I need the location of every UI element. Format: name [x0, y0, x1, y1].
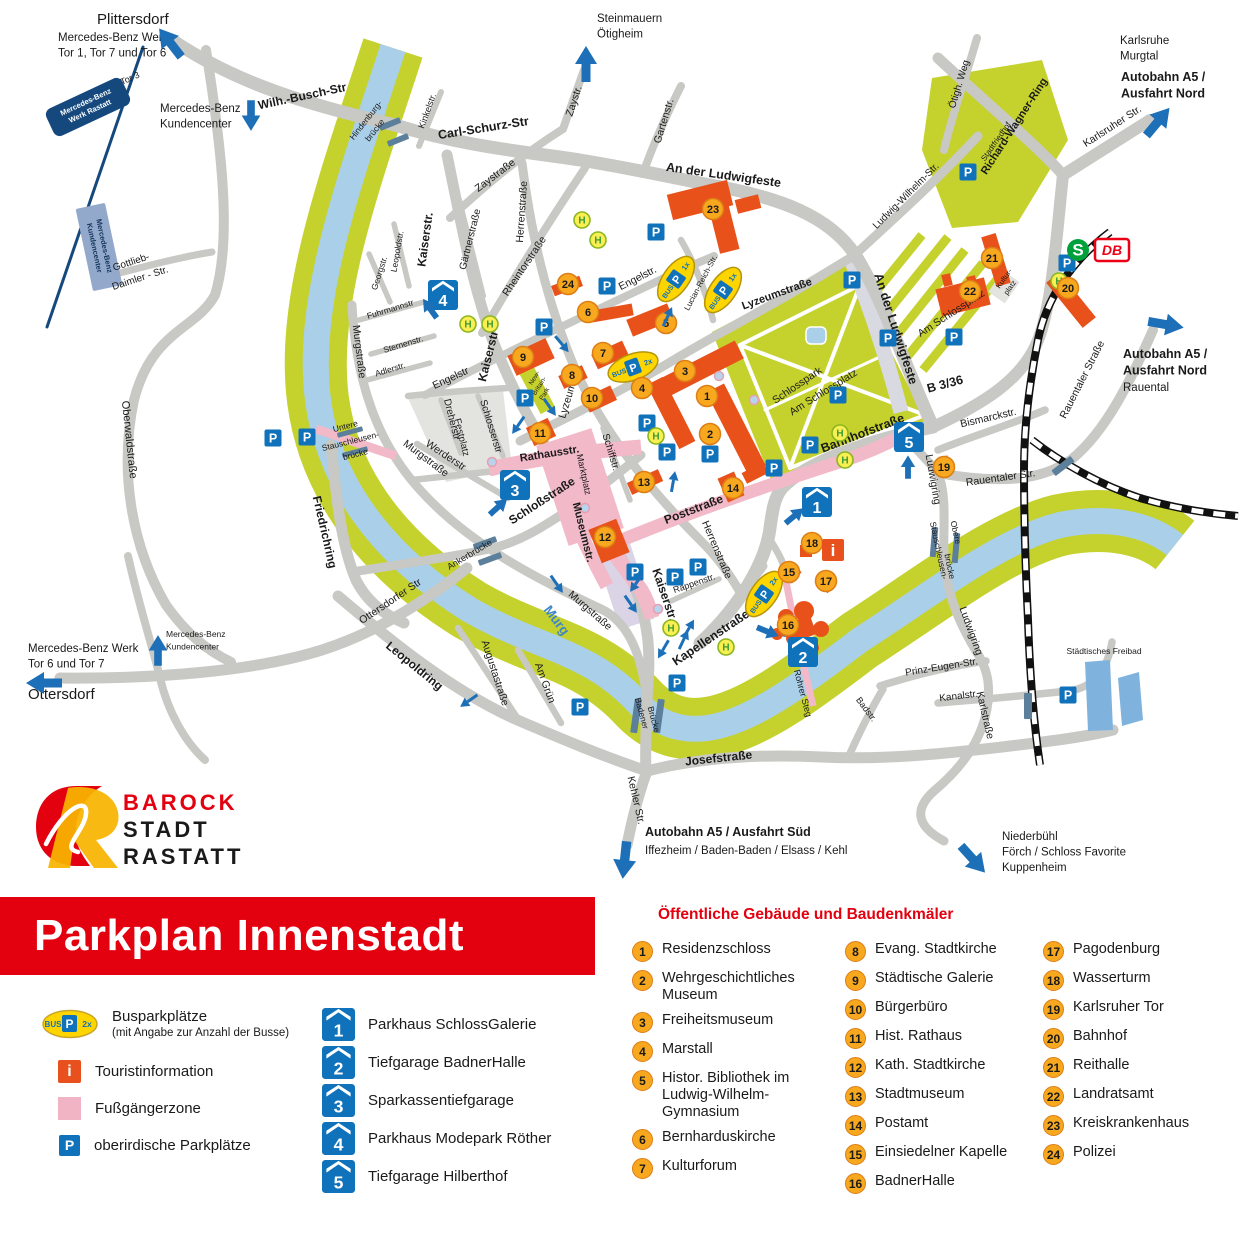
poi-marker: 22: [960, 281, 981, 302]
poi-legend-item: 19 Karlsruher Tor: [1043, 999, 1218, 1020]
parking-icon-p: P: [806, 439, 814, 453]
poi-legend-item: 14 Postamt: [845, 1115, 1030, 1136]
badnerhalle-building: [794, 601, 814, 621]
parking-icon: P: [702, 446, 719, 463]
poi-marker: 24: [558, 274, 579, 295]
poi-label: Stadtmuseum: [875, 1086, 964, 1107]
parking-icon: P: [766, 460, 783, 477]
parking-icon: P: [659, 444, 676, 461]
bus-stop-h: H: [836, 429, 843, 440]
parking-icon: P: [536, 319, 553, 336]
poi-label: Histor. Bibliothek im Ludwig-Wilhelm-Gym…: [662, 1070, 828, 1121]
poi-number-badge: 1: [632, 941, 653, 962]
destination-label: Karlsruhe: [1120, 35, 1169, 47]
poi-marker: 12: [595, 527, 616, 548]
brand-line: RASTATT: [123, 843, 243, 870]
bus-stop-h: H: [652, 432, 659, 443]
street-label: Obere: [949, 520, 964, 545]
parkhaus-icon: 3: [322, 1084, 355, 1117]
destination-label: Autobahn A5 /: [1121, 70, 1206, 84]
poi-label: Wehrgeschichtliches Museum: [662, 970, 828, 1004]
poi-legend-column: 8 Evang. Stadtkirche9 Städtische Galerie…: [845, 941, 1030, 1202]
brand-line: STADT: [123, 816, 243, 843]
street-label: Leopoldring: [383, 639, 446, 694]
city-map: Mercedes-BenzWerk RastattMercedes-BenzKu…: [0, 0, 1240, 897]
fountain: [488, 458, 497, 467]
poi-marker: 21: [982, 248, 1003, 269]
legend-parkplaetze: P oberirdische Parkplätze: [42, 1135, 342, 1156]
poi-number-badge: 18: [1043, 970, 1064, 991]
road: [128, 50, 231, 662]
garage-legend-item: 2 Tiefgarage BadnerHalle: [322, 1046, 551, 1079]
poi-legend-item: 4 Marstall: [632, 1041, 828, 1062]
parking-icon: P: [669, 675, 686, 692]
oneway-arrow-tail: [663, 640, 669, 650]
oneway-arrow-head: [685, 617, 698, 630]
poi-marker-number: 14: [727, 483, 740, 495]
bus-stop-icon: H: [832, 425, 848, 441]
parking-icon-p: P: [303, 431, 311, 445]
parking-icon-p: P: [950, 331, 958, 345]
poi-label: Marstall: [662, 1041, 713, 1062]
parkplan-poster: Mercedes-BenzWerk RastattMercedes-BenzKu…: [0, 0, 1240, 1240]
poi-marker: 18: [802, 533, 823, 554]
poi-legend-item: 24 Polizei: [1043, 1144, 1218, 1165]
destination-label: Autobahn A5 / Ausfahrt Süd: [645, 825, 811, 839]
street-label: Prinz-Eugen-Str.: [905, 656, 979, 678]
destination-label: Mercedes-Benz Werk: [28, 643, 139, 655]
poi-marker-number: 2: [707, 429, 713, 441]
direction-arrow: [611, 840, 638, 880]
parking-icon: P: [265, 430, 282, 447]
bus-stop-h: H: [594, 236, 601, 247]
schlosspark-pond: [806, 327, 826, 344]
poi-label: Bernharduskirche: [662, 1129, 776, 1150]
poi-marker-number: 12: [599, 532, 611, 544]
poi-label: Reithalle: [1073, 1057, 1129, 1078]
poi-number-badge: 9: [845, 970, 866, 991]
parking-icon-p: P: [770, 462, 778, 476]
poi-number-badge: 20: [1043, 1028, 1064, 1049]
parkhaus-number: 1: [813, 500, 822, 517]
svg-text:4: 4: [334, 1135, 344, 1155]
poi-legend-item: 11 Hist. Rathaus: [845, 1028, 1030, 1049]
poi-number-badge: 16: [845, 1173, 866, 1194]
bus-stop-icon: H: [482, 316, 498, 332]
sbahn-s: S: [1072, 241, 1083, 260]
legend-label: Fußgängerzone: [95, 1100, 201, 1117]
destination-label: Tor 6 und Tor 7: [28, 659, 105, 671]
destination-label: Kundencenter: [166, 642, 219, 652]
bridge: [1024, 693, 1032, 719]
svg-text:2x: 2x: [82, 1019, 92, 1029]
poi-label: Kulturforum: [662, 1158, 737, 1179]
poi-number-badge: 7: [632, 1158, 653, 1179]
poi-legend-item: 7 Kulturforum: [632, 1158, 828, 1179]
title-banner: Parkplan Innenstadt: [0, 897, 595, 975]
destination-label: Kuppenheim: [1002, 862, 1067, 874]
parking-icon-p: P: [631, 566, 639, 580]
badnerhalle-building: [813, 621, 829, 637]
poi-legend-item: 5 Histor. Bibliothek im Ludwig-Wilhelm-G…: [632, 1070, 828, 1121]
parkhaus-number: 4: [439, 293, 448, 310]
poi-label: Einsiedelner Kapelle: [875, 1144, 1007, 1165]
poi-number-badge: 13: [845, 1086, 866, 1107]
poi-label: Karlsruher Tor: [1073, 999, 1164, 1020]
legend-label: Touristinformation: [95, 1063, 213, 1080]
rastatt-logo-icon: [30, 782, 125, 870]
poi-marker: 10: [582, 388, 603, 409]
poi-legend-item: 16 BadnerHalle: [845, 1173, 1030, 1194]
destination-label: Ausfahrt Nord: [1123, 364, 1207, 378]
poi-legend-item: 21 Reithalle: [1043, 1057, 1218, 1078]
parking-icon-p: P: [603, 280, 611, 294]
garage-legend-item: 3 Sparkassentiefgarage: [322, 1084, 551, 1117]
garage-legend-label: Tiefgarage Hilberthof: [368, 1168, 508, 1185]
poi-number-badge: 24: [1043, 1144, 1064, 1165]
street-label: Kaiserstr.: [414, 211, 435, 267]
poi-number-badge: 19: [1043, 999, 1064, 1020]
poi-marker: 6: [578, 302, 599, 323]
bus-stop-h: H: [667, 624, 674, 635]
garage-direction-arrow: [901, 455, 915, 478]
garage-legend-label: Parkhaus Modepark Röther: [368, 1130, 551, 1147]
poi-marker-number: 21: [986, 253, 998, 265]
garage-legend-label: Tiefgarage BadnerHalle: [368, 1054, 526, 1071]
poi-label: Landratsamt: [1073, 1086, 1154, 1107]
poi-number-badge: 5: [632, 1070, 653, 1091]
freibad-building: [1118, 672, 1143, 726]
parking-icon: P: [960, 164, 977, 181]
destination-label: Ötigheim: [597, 29, 643, 41]
poi-marker-number: 18: [806, 538, 818, 550]
parkhaus-icon: 5: [322, 1160, 355, 1193]
sbahn-icon: S: [1067, 239, 1089, 261]
street-label: Gartenstr.: [652, 97, 677, 145]
parking-icon-p: P: [884, 332, 892, 346]
poi-label: Postamt: [875, 1115, 928, 1136]
poi-label: Bürgerbüro: [875, 999, 948, 1020]
destination-label: Kundencenter: [160, 119, 232, 131]
poi-label: BadnerHalle: [875, 1173, 955, 1194]
page-title: Parkplan Innenstadt: [0, 897, 595, 975]
poi-legend-column: 1 Residenzschloss2 Wehrgeschichtliches M…: [632, 941, 828, 1187]
poi-number-badge: 21: [1043, 1057, 1064, 1078]
poi-marker-number: 3: [682, 366, 688, 378]
road: [128, 556, 205, 760]
bus-stop-icon: H: [574, 212, 590, 228]
street-label: Städtisches Freibad: [1066, 646, 1141, 656]
poi-number-badge: 8: [845, 941, 866, 962]
destination-label: Steinmauern: [597, 13, 662, 25]
parking-icon: P: [802, 437, 819, 454]
parking-icon: P: [667, 569, 684, 586]
poi-marker: 19: [934, 457, 955, 478]
mercedes-site-box: Mercedes-BenzKundencenter: [76, 203, 123, 291]
poi-marker: 11: [530, 423, 551, 444]
parking-icon: P: [648, 224, 665, 241]
poi-legend-item: 1 Residenzschloss: [632, 941, 828, 962]
destination-label: Autobahn A5 /: [1123, 347, 1208, 361]
direction-arrow: [953, 838, 993, 879]
brand-line: BAROCK: [123, 789, 243, 816]
poi-legend-item: 22 Landratsamt: [1043, 1086, 1218, 1107]
bus-stop-icon: H: [837, 452, 853, 468]
parkhaus-icon: 2: [788, 637, 818, 667]
oneway-arrow-tail: [671, 480, 673, 492]
poi-marker: 2: [700, 424, 721, 445]
garage-legend: 1 Parkhaus SchlossGalerie 2 Tiefgarage B…: [322, 1008, 551, 1198]
street-label: Zaystraße: [473, 156, 518, 194]
poi-marker: 16: [778, 615, 799, 636]
poi-label: Evang. Stadtkirche: [875, 941, 997, 962]
road: [921, 702, 988, 841]
parkhaus-icon: 3: [500, 470, 530, 500]
parking-icon: P: [690, 559, 707, 576]
poi-marker: 17: [816, 571, 837, 592]
poi-number-badge: 2: [632, 970, 653, 991]
poi-marker: 23: [703, 199, 724, 220]
db-text: DB: [1102, 242, 1122, 258]
mercedes-site-box: Mercedes-BenzWerk Rastatt: [44, 76, 133, 139]
poi-number-badge: 11: [845, 1028, 866, 1049]
bus-stop-icon: H: [590, 232, 606, 248]
parking-icon: P: [517, 390, 534, 407]
street-label: Rauentaler Straße: [1058, 339, 1108, 421]
parking-icon-p: P: [671, 571, 679, 585]
poi-marker: 8: [562, 365, 583, 386]
parking-icon: P: [830, 387, 847, 404]
street-label: B 3/36: [925, 373, 964, 396]
legend-sublabel: (mit Angabe zur Anzahl der Busse): [112, 1027, 289, 1039]
parking-icon-p: P: [694, 561, 702, 575]
legend-label: oberirdische Parkplätze: [94, 1137, 251, 1154]
poi-number-badge: 3: [632, 1012, 653, 1033]
parkhaus-icon: 2: [322, 1046, 355, 1079]
poi-marker-number: 20: [1062, 283, 1074, 295]
garage-legend-item: 5 Tiefgarage Hilberthof: [322, 1160, 551, 1193]
poi-marker: 7: [593, 343, 614, 364]
poi-label: Bahnhof: [1073, 1028, 1127, 1049]
destination-label: Mercedes-Benz: [166, 629, 226, 639]
poi-marker-number: 19: [938, 462, 950, 474]
bus-stop-h: H: [578, 216, 585, 227]
poi-legend-item: 6 Bernharduskirche: [632, 1129, 828, 1150]
parking-icon: P: [1060, 687, 1077, 704]
poi-number-badge: 14: [845, 1115, 866, 1136]
poi-marker-number: 7: [600, 348, 606, 360]
oneway-arrow-tail: [517, 417, 524, 427]
oneway-arrow-head: [654, 648, 667, 661]
parking-icon-p: P: [269, 432, 277, 446]
poi-legend-item: 9 Städtische Galerie: [845, 970, 1030, 991]
poi-marker: 20: [1058, 278, 1079, 299]
poi-number-badge: 6: [632, 1129, 653, 1150]
brand-text: BAROCK STADT RASTATT: [123, 789, 243, 870]
parking-icon-p: P: [964, 166, 972, 180]
poi-marker-number: 15: [783, 567, 795, 579]
bus-stop-icon: H: [663, 620, 679, 636]
parking-icon: P: [299, 429, 316, 446]
destination-label: Tor 1, Tor 7 und Tor 6: [58, 48, 166, 60]
parkhaus-icon: 1: [322, 1008, 355, 1041]
parking-icon-p: P: [652, 226, 660, 240]
poi-marker-number: 17: [820, 576, 832, 588]
parkhaus-number: 2: [799, 650, 808, 667]
poi-legend-item: 2 Wehrgeschichtliches Museum: [632, 970, 828, 1004]
poi-legend-item: 10 Bürgerbüro: [845, 999, 1030, 1020]
poi-legend-item: 15 Einsiedelner Kapelle: [845, 1144, 1030, 1165]
garage-legend-label: Sparkassentiefgarage: [368, 1092, 514, 1109]
poi-legend-column: 17 Pagodenburg18 Wasserturm19 Karlsruher…: [1043, 941, 1218, 1173]
poi-marker-number: 22: [964, 286, 976, 298]
poi-marker: 3: [675, 361, 696, 382]
parking-icon-p: P: [576, 701, 584, 715]
parking-icon: P: [572, 699, 589, 716]
poi-legend-item: 3 Freiheitsmuseum: [632, 1012, 828, 1033]
parkhaus-icon: 5: [894, 422, 924, 452]
destination-label: Ausfahrt Nord: [1121, 87, 1205, 101]
parking-icon: P: [946, 329, 963, 346]
street-label: Sternenstr.: [382, 333, 424, 355]
parking-icon-p: P: [643, 417, 651, 431]
poi-marker: 14: [723, 478, 744, 499]
poi-legend-item: 12 Kath. Stadtkirche: [845, 1057, 1030, 1078]
poi-marker: 1: [697, 386, 718, 407]
legend-label: Busparkplätze: [112, 1008, 289, 1025]
parking-icon-p: P: [540, 321, 548, 335]
legend-fussgaengerzone: Fußgängerzone: [42, 1097, 342, 1120]
parking-icon-p: P: [848, 274, 856, 288]
destination-label: Förch / Schloss Favorite: [1002, 847, 1126, 859]
parking-icon-p: P: [1064, 689, 1072, 703]
poi-legend-item: 18 Wasserturm: [1043, 970, 1218, 991]
poi-marker-number: 24: [562, 279, 575, 291]
poi-marker-number: 1: [704, 391, 710, 403]
destination-label: Mercedes-Benz: [160, 103, 241, 115]
poi-marker-number: 10: [586, 393, 598, 405]
bus-stop-h: H: [841, 456, 848, 467]
destination-label: Mercedes-Benz Werk: [58, 32, 169, 44]
street-label: Carl-Schurz-Str: [437, 114, 530, 142]
poi-marker: 9: [513, 347, 534, 368]
svg-text:BUS: BUS: [45, 1020, 63, 1029]
bus-stop-h: H: [722, 643, 729, 654]
poi-legend-item: 23 Kreiskrankenhaus: [1043, 1115, 1218, 1136]
svg-text:2: 2: [334, 1059, 344, 1079]
garage-legend-item: 1 Parkhaus SchlossGalerie: [322, 1008, 551, 1041]
destination-label: Plittersdorf: [97, 11, 170, 28]
parking-icon: P: [880, 330, 897, 347]
tourist-info-icon: i: [58, 1060, 81, 1083]
bus-stop-icon: H: [648, 428, 664, 444]
poi-marker-number: 4: [639, 383, 646, 395]
poi-number-badge: 22: [1043, 1086, 1064, 1107]
parkhaus-number: 5: [905, 435, 914, 452]
poi-marker-number: 6: [585, 307, 591, 319]
bus-parking-icon: BUS P 2x: [42, 1009, 98, 1039]
parkhaus-icon: 1: [802, 487, 832, 517]
poi-marker-number: 9: [520, 352, 526, 364]
poi-label: Kreiskrankenhaus: [1073, 1115, 1189, 1136]
fountain: [750, 396, 759, 405]
parking-icon-p: P: [673, 677, 681, 691]
parking-icon-p: P: [706, 448, 714, 462]
poi-number-badge: 4: [632, 1041, 653, 1062]
poi-label: Städtische Galerie: [875, 970, 993, 991]
oneway-arrow-head: [669, 470, 680, 481]
destination-label: Rauental: [1123, 382, 1169, 394]
parking-icon-p: P: [834, 389, 842, 403]
fountain: [654, 605, 663, 614]
bus-stop-icon: H: [460, 316, 476, 332]
svg-text:1: 1: [334, 1021, 344, 1041]
svg-text:3: 3: [334, 1097, 344, 1117]
poi-marker-number: 8: [569, 370, 575, 382]
poi-number-badge: 10: [845, 999, 866, 1020]
garage-legend-item: 4 Parkhaus Modepark Röther: [322, 1122, 551, 1155]
poi-marker-number: 23: [707, 204, 719, 216]
poi-number-badge: 12: [845, 1057, 866, 1078]
poi-marker: 13: [634, 472, 655, 493]
destination-label: Murgtal: [1120, 51, 1158, 63]
poi-marker-number: 11: [534, 428, 546, 440]
parking-icon: P: [844, 272, 861, 289]
parkhaus-icon: 4: [322, 1122, 355, 1155]
bus-stop-h: H: [486, 320, 493, 331]
poi-marker: 4: [632, 378, 653, 399]
db-icon: DB: [1095, 239, 1129, 261]
parking-icon-p: P: [521, 392, 529, 406]
legend-busparkplaetze: BUS P 2x Busparkplätze (mit Angabe zur A…: [42, 1008, 342, 1039]
poi-label: Kath. Stadtkirche: [875, 1057, 985, 1078]
poi-label: Freiheitsmuseum: [662, 1012, 773, 1033]
bus-stop-icon: H: [718, 639, 734, 655]
surface-parking-icon: P: [59, 1135, 80, 1156]
parking-icon: P: [599, 278, 616, 295]
poi-marker: 15: [779, 562, 800, 583]
street-label: Ludwig-Wilhelm-Str.: [871, 161, 942, 232]
parkhaus-number: 3: [511, 483, 520, 500]
destination-label: Iffezheim / Baden-Baden / Elsass / Kehl: [645, 845, 847, 857]
poi-number-badge: 23: [1043, 1115, 1064, 1136]
poi-label: Polizei: [1073, 1144, 1116, 1165]
poi-label: Wasserturm: [1073, 970, 1151, 991]
oneway-arrow: [667, 470, 680, 492]
poi-marker-number: 16: [782, 620, 794, 632]
tourist-info-icon: i: [822, 539, 844, 561]
poi-number-badge: 15: [845, 1144, 866, 1165]
freibad-building: [1085, 660, 1113, 731]
svg-text:5: 5: [334, 1173, 344, 1193]
poi-label: Pagodenburg: [1073, 941, 1160, 962]
poi-marker-number: 13: [638, 477, 650, 489]
pedestrian-zone-swatch: [58, 1097, 81, 1120]
parking-icon-p: P: [663, 446, 671, 460]
street-label: Zaystr.: [564, 84, 585, 118]
poi-label: Hist. Rathaus: [875, 1028, 962, 1049]
poi-legend-item: 13 Stadtmuseum: [845, 1086, 1030, 1107]
parking-icon-p: P: [1063, 257, 1071, 271]
street-label: Kapellenstraße: [670, 607, 752, 669]
poi-legend-item: 20 Bahnhof: [1043, 1028, 1218, 1049]
poi-number-badge: 17: [1043, 941, 1064, 962]
fountain: [715, 372, 724, 381]
poi-legend-item: 8 Evang. Stadtkirche: [845, 941, 1030, 962]
legend-touristinfo: i Touristinformation: [42, 1060, 342, 1083]
svg-text:P: P: [65, 1017, 73, 1031]
garage-legend-label: Parkhaus SchlossGalerie: [368, 1016, 536, 1033]
